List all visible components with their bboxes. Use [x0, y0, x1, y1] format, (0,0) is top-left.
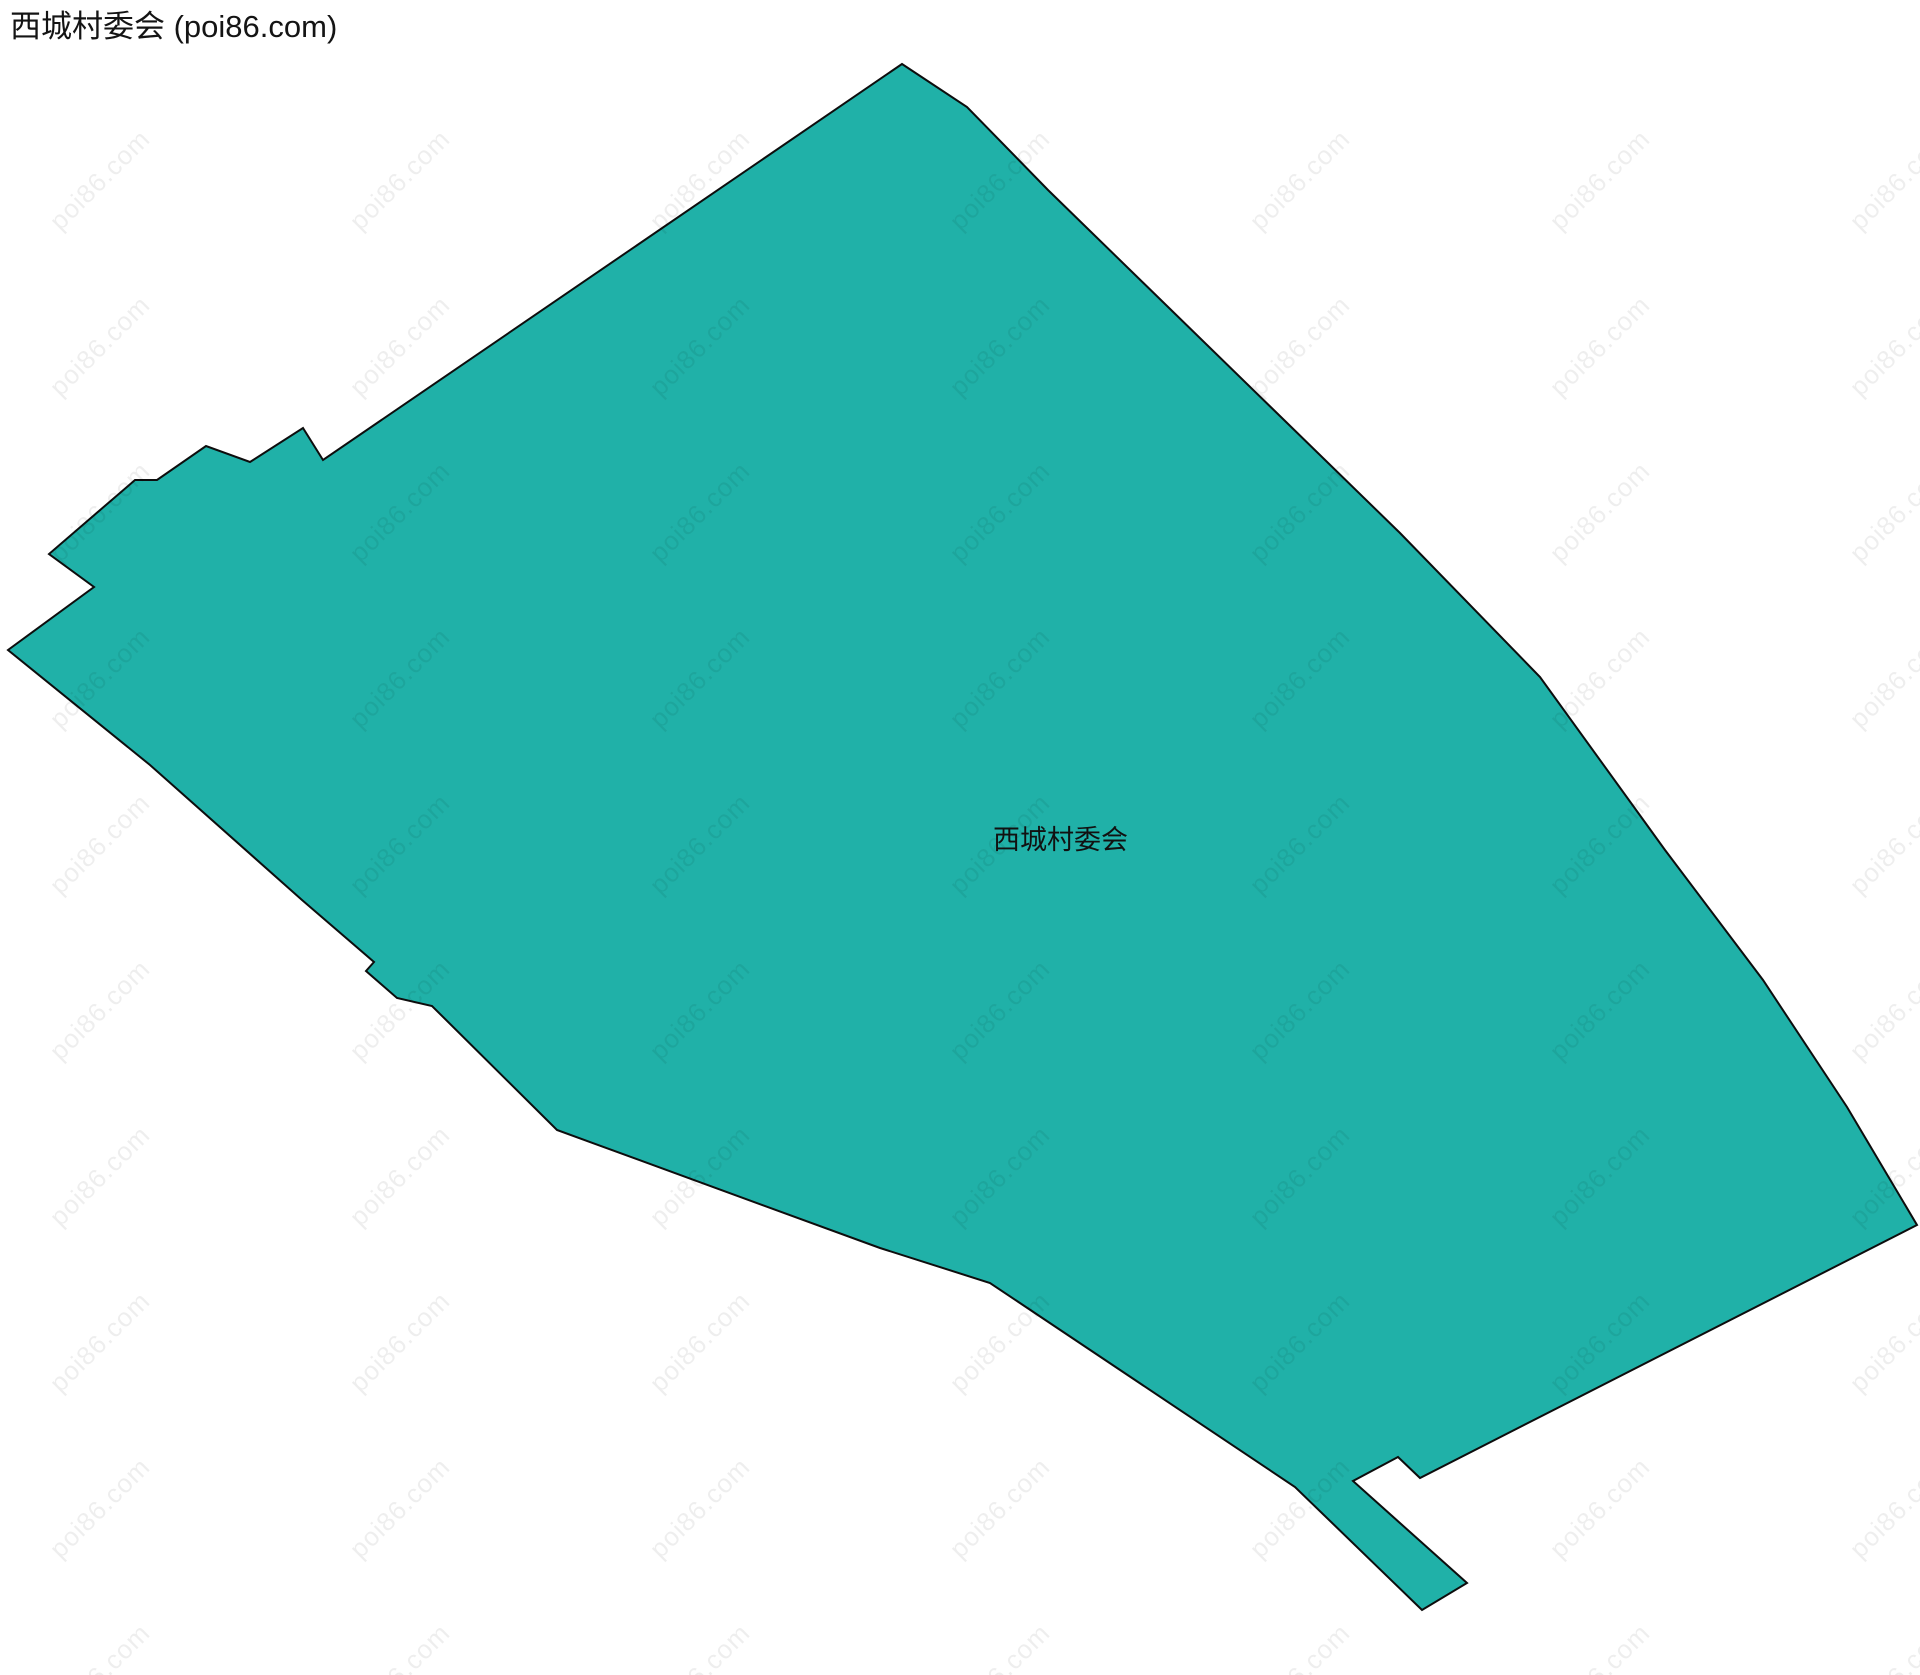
region-label: 西城村委会: [993, 818, 1128, 857]
page-title: 西城村委会 (poi86.com): [10, 8, 337, 45]
map-svg: [0, 0, 1920, 1675]
map-canvas: poi86.compoi86.compoi86.compoi86.compoi8…: [0, 0, 1920, 1675]
region-polygon[interactable]: [8, 64, 1917, 1610]
